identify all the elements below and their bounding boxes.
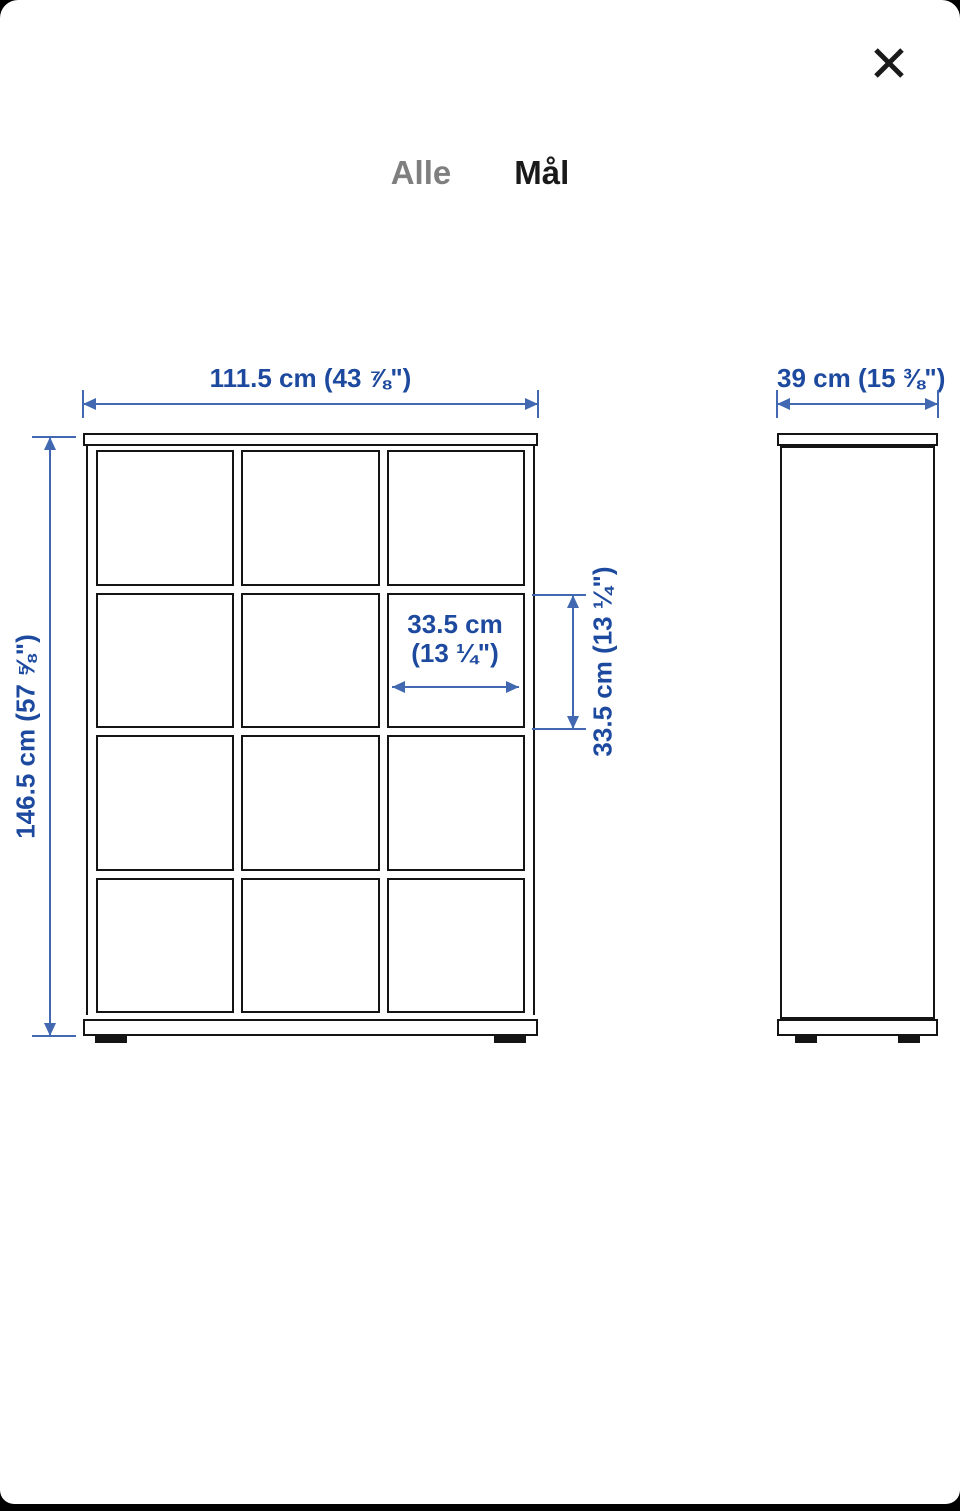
front-height-dimension-arrow <box>49 437 51 1036</box>
cube-cell <box>387 878 525 1014</box>
front-foot-right <box>494 1036 526 1043</box>
front-width-dimension-arrow <box>83 403 538 405</box>
side-body <box>780 446 935 1019</box>
front-top-panel <box>83 433 538 446</box>
cube-cell <box>241 450 379 586</box>
side-foot-left <box>795 1036 817 1043</box>
cube-height-label: 33.5 cm (13 ¼") <box>589 552 618 772</box>
dimensions-panel: Alle Mål 111.5 cm (43 ⅞") 39 cm (15 ⅜") … <box>0 0 960 1504</box>
tab-maal[interactable]: Mål <box>514 156 569 189</box>
side-foot-right <box>898 1036 920 1043</box>
front-width-label: 111.5 cm (43 ⅞") <box>83 364 538 393</box>
close-icon <box>872 46 906 80</box>
cube-cell <box>96 735 234 871</box>
cube-cell <box>387 450 525 586</box>
cube-width-dimension-arrow <box>392 686 519 688</box>
side-base-panel <box>777 1019 938 1036</box>
cube-width-label: 33.5 cm (13 ¼") <box>390 610 520 668</box>
front-body <box>86 446 535 1015</box>
front-view-drawing <box>83 433 538 1043</box>
front-height-label: 146.5 cm (57 ⅝") <box>12 597 41 877</box>
tab-alle[interactable]: Alle <box>391 156 452 189</box>
view-tabs: Alle Mål <box>0 148 960 196</box>
front-grid <box>96 450 525 1013</box>
front-foot-left <box>95 1036 127 1043</box>
cube-cell <box>96 450 234 586</box>
cube-cell <box>241 735 379 871</box>
cube-cell <box>241 593 379 729</box>
cube-cell <box>96 878 234 1014</box>
cube-cell <box>387 735 525 871</box>
cube-cell <box>96 593 234 729</box>
side-view-drawing <box>777 433 938 1043</box>
front-base-panel <box>83 1019 538 1036</box>
close-button[interactable] <box>858 33 920 93</box>
side-top-panel <box>777 433 938 446</box>
side-depth-label: 39 cm (15 ⅜") <box>777 364 938 393</box>
cube-height-dimension-arrow <box>572 595 574 729</box>
side-depth-dimension-arrow <box>777 403 938 405</box>
cube-cell <box>241 878 379 1014</box>
